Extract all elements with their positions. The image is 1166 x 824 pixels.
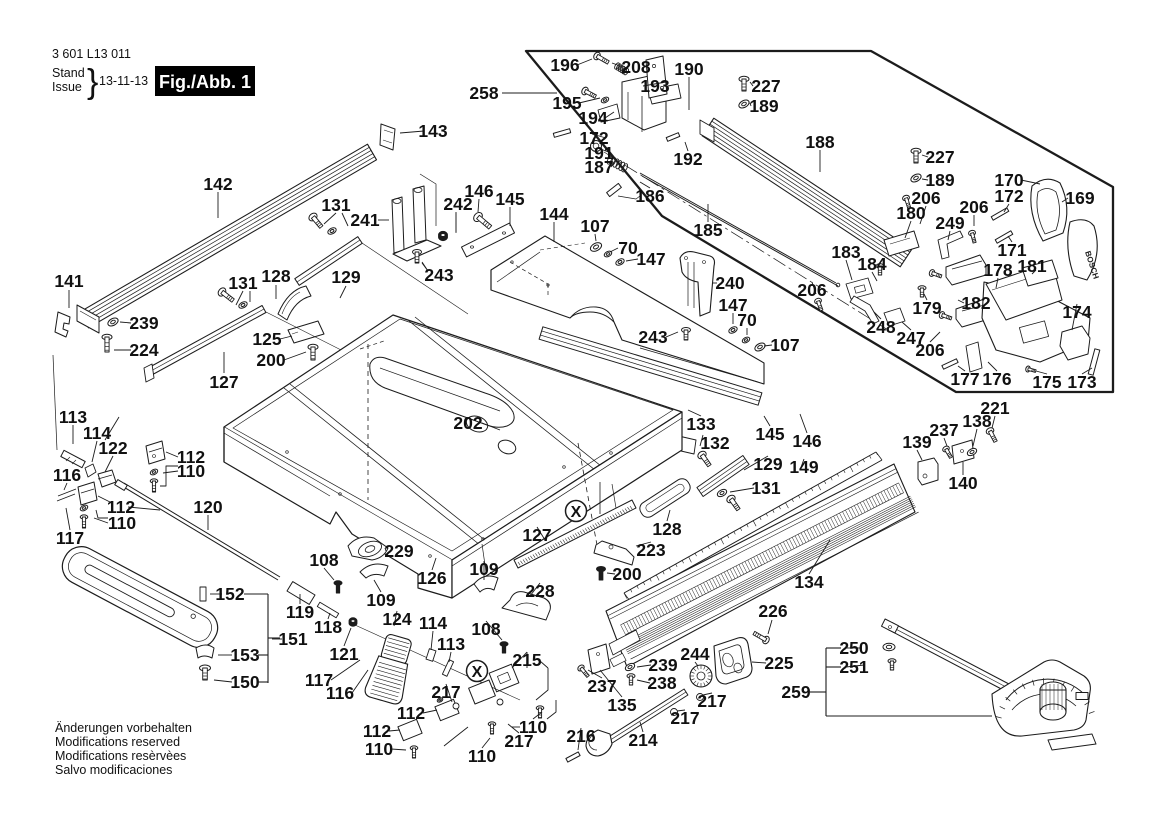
svg-text:113: 113 (437, 634, 465, 654)
svg-text:116: 116 (326, 683, 354, 703)
svg-text:110: 110 (365, 739, 393, 759)
svg-text:189: 189 (749, 96, 778, 116)
svg-text:Salvo modificaciones: Salvo modificaciones (55, 763, 172, 777)
svg-text:108: 108 (471, 619, 500, 639)
svg-text:114: 114 (419, 613, 447, 633)
svg-text:153: 153 (230, 645, 259, 665)
svg-text:139: 139 (902, 432, 931, 452)
svg-text:143: 143 (418, 121, 447, 141)
svg-text:112: 112 (397, 703, 425, 723)
svg-text:177: 177 (950, 369, 979, 389)
svg-text:243: 243 (424, 265, 453, 285)
svg-text:Modifications resèrvèes: Modifications resèrvèes (55, 749, 186, 763)
svg-text:258: 258 (469, 83, 498, 103)
svg-text:229: 229 (384, 541, 413, 561)
svg-text:Stand: Stand (52, 66, 85, 80)
svg-text:128: 128 (261, 266, 290, 286)
svg-text:194: 194 (578, 108, 607, 128)
svg-text:126: 126 (417, 568, 446, 588)
svg-text:251: 251 (839, 657, 868, 677)
svg-text:140: 140 (948, 473, 977, 493)
svg-text:224: 224 (129, 340, 158, 360)
svg-text:Issue: Issue (52, 80, 82, 94)
svg-text:117: 117 (56, 528, 84, 548)
svg-text:150: 150 (230, 672, 259, 692)
svg-text:200: 200 (256, 350, 285, 370)
svg-text:239: 239 (129, 313, 158, 333)
svg-text:248: 248 (866, 317, 895, 337)
svg-text:124: 124 (382, 609, 411, 629)
svg-text:3 601 L13 011: 3 601 L13 011 (52, 47, 131, 61)
svg-text:Fig./Abb. 1: Fig./Abb. 1 (159, 72, 251, 92)
svg-text:227: 227 (925, 147, 954, 167)
svg-text:217: 217 (431, 682, 460, 702)
svg-text:134: 134 (794, 572, 823, 592)
svg-text:243: 243 (638, 327, 667, 347)
svg-text:184: 184 (857, 254, 886, 274)
svg-text:X: X (472, 664, 483, 681)
svg-text:Änderungen vorbehalten: Änderungen vorbehalten (55, 721, 192, 735)
svg-text:214: 214 (628, 730, 657, 750)
svg-text:110: 110 (468, 746, 496, 766)
svg-text:107: 107 (770, 335, 799, 355)
svg-text:193: 193 (640, 76, 669, 96)
svg-text:70: 70 (618, 238, 638, 258)
svg-text:228: 228 (525, 581, 554, 601)
svg-text:173: 173 (1067, 372, 1096, 392)
svg-text:217: 217 (670, 708, 699, 728)
svg-text:217: 217 (504, 731, 533, 751)
svg-text:240: 240 (715, 273, 744, 293)
svg-text:176: 176 (982, 369, 1011, 389)
svg-text:132: 132 (700, 433, 729, 453)
svg-text:250: 250 (839, 638, 868, 658)
svg-text:225: 225 (764, 653, 793, 673)
svg-text:215: 215 (512, 650, 541, 670)
svg-text:112: 112 (363, 721, 391, 741)
svg-text:227: 227 (751, 76, 780, 96)
svg-text:110: 110 (108, 513, 136, 533)
svg-text:190: 190 (674, 59, 703, 79)
svg-text:122: 122 (98, 438, 127, 458)
svg-text:133: 133 (686, 414, 715, 434)
svg-text:244: 244 (680, 644, 709, 664)
svg-text:200: 200 (612, 564, 641, 584)
svg-text:188: 188 (805, 132, 834, 152)
svg-text:127: 127 (209, 372, 238, 392)
svg-text:131: 131 (228, 273, 257, 293)
svg-text:208: 208 (621, 57, 650, 77)
svg-text:128: 128 (652, 519, 681, 539)
svg-text:119: 119 (286, 602, 314, 622)
svg-text:196: 196 (550, 55, 579, 75)
svg-text:226: 226 (758, 601, 787, 621)
svg-text:179: 179 (912, 298, 941, 318)
svg-text:125: 125 (252, 329, 281, 349)
svg-text:X: X (571, 504, 582, 521)
svg-text:237: 237 (587, 676, 616, 696)
svg-text:181: 181 (1017, 256, 1046, 276)
svg-text:149: 149 (789, 457, 818, 477)
svg-text:221: 221 (980, 398, 1009, 418)
svg-text:120: 120 (193, 497, 222, 517)
svg-text:178: 178 (983, 260, 1012, 280)
svg-text:107: 107 (580, 216, 609, 236)
svg-text:146: 146 (792, 431, 821, 451)
svg-text:129: 129 (753, 454, 782, 474)
svg-text:108: 108 (309, 550, 338, 570)
svg-text:109: 109 (366, 590, 395, 610)
svg-text:145: 145 (755, 424, 784, 444)
svg-text:259: 259 (781, 682, 810, 702)
svg-text:241: 241 (350, 210, 379, 230)
svg-text:121: 121 (329, 644, 358, 664)
svg-text:151: 151 (278, 629, 307, 649)
svg-text:185: 185 (693, 220, 722, 240)
svg-text:129: 129 (331, 267, 360, 287)
svg-text:118: 118 (314, 617, 342, 637)
svg-text:127: 127 (522, 525, 551, 545)
svg-text:238: 238 (647, 673, 676, 693)
svg-text:186: 186 (635, 186, 664, 206)
svg-text:110: 110 (177, 461, 205, 481)
svg-text:192: 192 (673, 149, 702, 169)
svg-text:141: 141 (54, 271, 83, 291)
svg-text:152: 152 (215, 584, 244, 604)
svg-text:169: 169 (1065, 188, 1094, 208)
svg-text:131: 131 (321, 195, 350, 215)
svg-text:131: 131 (751, 478, 780, 498)
svg-text:142: 142 (203, 174, 232, 194)
svg-text:146: 146 (464, 181, 493, 201)
svg-text:109: 109 (469, 559, 498, 579)
svg-text:135: 135 (607, 695, 636, 715)
svg-text:70: 70 (737, 310, 757, 330)
svg-text:Modifications reserved: Modifications reserved (55, 735, 180, 749)
svg-text:237: 237 (929, 420, 958, 440)
svg-text:206: 206 (915, 340, 944, 360)
svg-text:239: 239 (648, 655, 677, 675)
svg-text:144: 144 (539, 204, 568, 224)
svg-text:182: 182 (961, 293, 990, 313)
svg-text:187: 187 (584, 157, 613, 177)
svg-text:13-11-13: 13-11-13 (99, 74, 148, 88)
svg-text:}: } (87, 63, 98, 101)
svg-text:172: 172 (994, 186, 1023, 206)
svg-text:174: 174 (1062, 302, 1091, 322)
svg-text:189: 189 (925, 170, 954, 190)
svg-text:147: 147 (636, 249, 665, 269)
svg-text:249: 249 (935, 213, 964, 233)
svg-text:175: 175 (1032, 372, 1061, 392)
svg-text:116: 116 (53, 465, 81, 485)
svg-text:223: 223 (636, 540, 665, 560)
svg-text:217: 217 (697, 691, 726, 711)
svg-text:202: 202 (453, 413, 482, 433)
svg-text:216: 216 (566, 726, 595, 746)
svg-text:206: 206 (797, 280, 826, 300)
svg-text:145: 145 (495, 189, 524, 209)
svg-text:180: 180 (896, 203, 925, 223)
